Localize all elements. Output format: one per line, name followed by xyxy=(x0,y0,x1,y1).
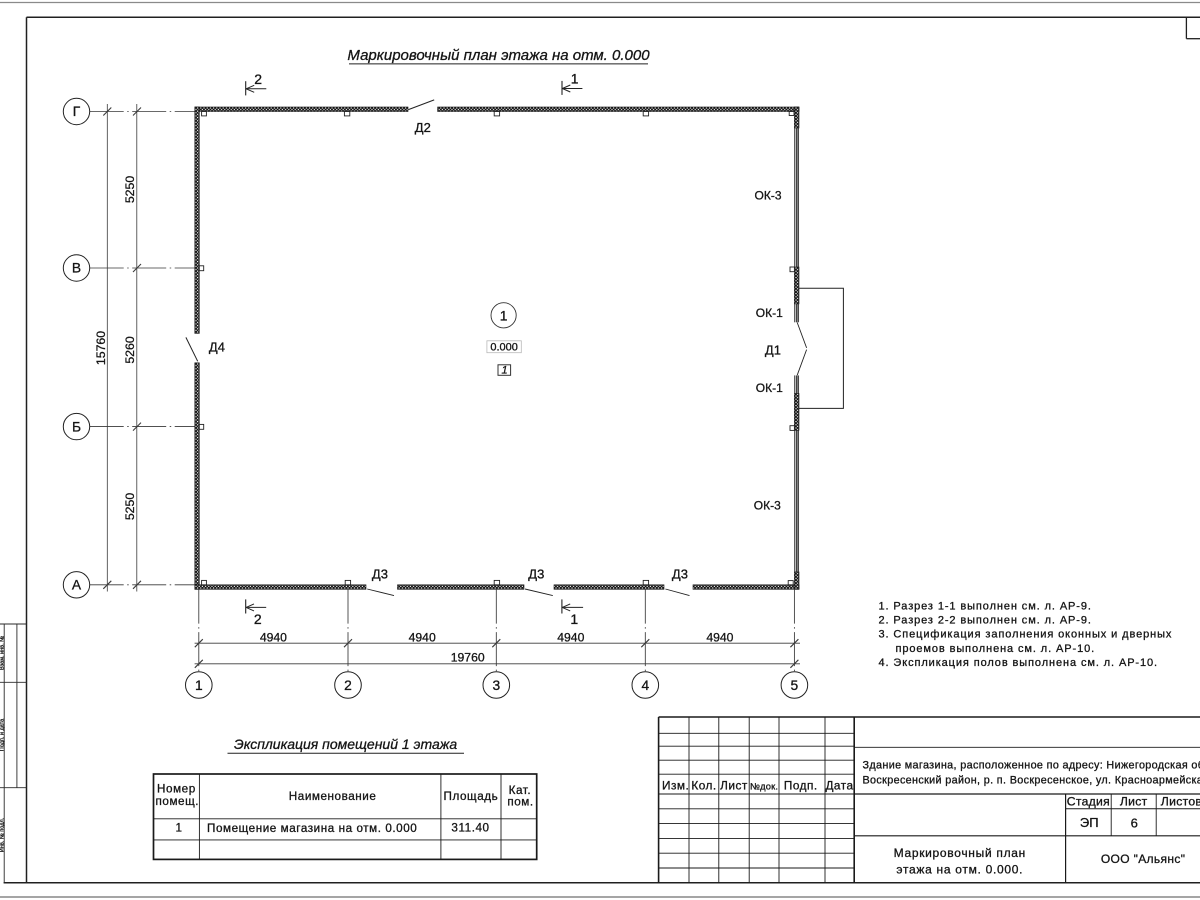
svg-text:Д1: Д1 xyxy=(765,343,781,358)
svg-text:ОК-3: ОК-3 xyxy=(755,189,782,203)
svg-text:Воскресенский район, р. п. Вос: Воскресенский район, р. п. Воскресенское… xyxy=(863,774,1200,786)
svg-text:ООО "Альянс": ООО "Альянс" xyxy=(1101,852,1185,866)
svg-text:Кол.: Кол. xyxy=(691,779,716,793)
svg-text:Д3: Д3 xyxy=(672,566,688,581)
svg-text:1: 1 xyxy=(195,678,203,693)
svg-text:2: 2 xyxy=(254,71,262,87)
svg-text:Г: Г xyxy=(73,104,81,119)
svg-text:Д3: Д3 xyxy=(528,566,544,581)
svg-text:1: 1 xyxy=(571,71,579,87)
svg-text:1. Разрез 1-1 выполнен см. л.: 1. Разрез 1-1 выполнен см. л. АР-9. xyxy=(879,600,1092,612)
svg-text:1: 1 xyxy=(502,365,508,377)
svg-text:2: 2 xyxy=(254,611,262,627)
svg-text:Экспликация помещений 1 этажа: Экспликация помещений 1 этажа xyxy=(234,736,457,752)
svg-text:Д2: Д2 xyxy=(415,120,431,135)
svg-text:проемов выполнена см. л. АР-10: проемов выполнена см. л. АР-10. xyxy=(896,643,1096,655)
svg-text:5: 5 xyxy=(791,678,799,693)
svg-text:Лист: Лист xyxy=(720,779,748,793)
svg-text:4940: 4940 xyxy=(409,630,436,644)
svg-text:5250: 5250 xyxy=(123,493,137,521)
svg-text:А: А xyxy=(72,578,82,593)
svg-text:ОК-3: ОК-3 xyxy=(754,499,781,513)
svg-text:В: В xyxy=(72,261,81,276)
svg-text:15760: 15760 xyxy=(94,331,108,365)
svg-text:ЭП: ЭП xyxy=(1080,815,1099,830)
svg-text:4940: 4940 xyxy=(557,630,584,644)
svg-text:1: 1 xyxy=(175,822,182,835)
svg-text:Листов: Листов xyxy=(1161,795,1200,809)
svg-text:Дата: Дата xyxy=(825,779,853,793)
svg-text:3. Спецификация заполнения око: 3. Спецификация заполнения оконных и две… xyxy=(879,629,1173,641)
svg-text:Номер: Номер xyxy=(157,783,196,796)
svg-text:Д4: Д4 xyxy=(209,339,225,354)
svg-text:этажа на отм. 0.000.: этажа на отм. 0.000. xyxy=(896,863,1023,877)
svg-text:Подп. и дата: Подп. и дата xyxy=(0,718,5,751)
svg-text:3: 3 xyxy=(492,678,500,693)
svg-text:2: 2 xyxy=(344,678,352,693)
svg-text:Площадь: Площадь xyxy=(444,790,499,803)
svg-text:помещ.: помещ. xyxy=(156,795,200,808)
svg-text:1: 1 xyxy=(570,611,578,627)
svg-text:5260: 5260 xyxy=(123,336,137,364)
svg-text:Здание магазина, расположенное: Здание магазина, расположенное по адресу… xyxy=(863,760,1200,772)
svg-text:Стадия: Стадия xyxy=(1067,795,1110,809)
svg-text:19760: 19760 xyxy=(451,651,485,665)
svg-text:311.40: 311.40 xyxy=(451,822,489,835)
svg-text:ОК-1: ОК-1 xyxy=(756,381,783,395)
svg-text:4: 4 xyxy=(641,678,649,693)
svg-text:Изм.: Изм. xyxy=(662,779,689,793)
svg-text:1: 1 xyxy=(500,307,508,323)
svg-text:Маркировочный план этажа на от: Маркировочный план этажа на отм. 0.000 xyxy=(347,47,650,64)
svg-text:4. Экспликация полов выполнена: 4. Экспликация полов выполнена см. л. АР… xyxy=(879,657,1159,669)
svg-text:2. Разрез 2-2 выполнен см. л.: 2. Разрез 2-2 выполнен см. л. АР-9. xyxy=(879,614,1092,626)
svg-text:Б: Б xyxy=(72,419,81,434)
svg-text:Наименование: Наименование xyxy=(289,790,377,803)
svg-text:5250: 5250 xyxy=(123,176,137,204)
svg-text:6: 6 xyxy=(1131,816,1138,831)
svg-text:0.000: 0.000 xyxy=(490,342,518,354)
svg-text:Лист: Лист xyxy=(1120,795,1148,809)
svg-text:Инв. № подл.: Инв. № подл. xyxy=(0,817,5,852)
svg-text:Д3: Д3 xyxy=(372,566,388,581)
svg-text:4940: 4940 xyxy=(706,630,733,644)
svg-text:Подп.: Подп. xyxy=(784,779,818,793)
svg-text:№док.: №док. xyxy=(750,781,778,791)
svg-text:4940: 4940 xyxy=(260,630,287,644)
svg-text:Взам. инв. №: Взам. инв. № xyxy=(0,636,5,670)
svg-text:Помещение магазина на отм. 0.0: Помещение магазина на отм. 0.000 xyxy=(207,822,417,835)
svg-text:пом.: пом. xyxy=(507,795,533,808)
svg-text:ОК-1: ОК-1 xyxy=(756,306,783,320)
svg-text:Маркировочный план: Маркировочный план xyxy=(894,846,1026,860)
